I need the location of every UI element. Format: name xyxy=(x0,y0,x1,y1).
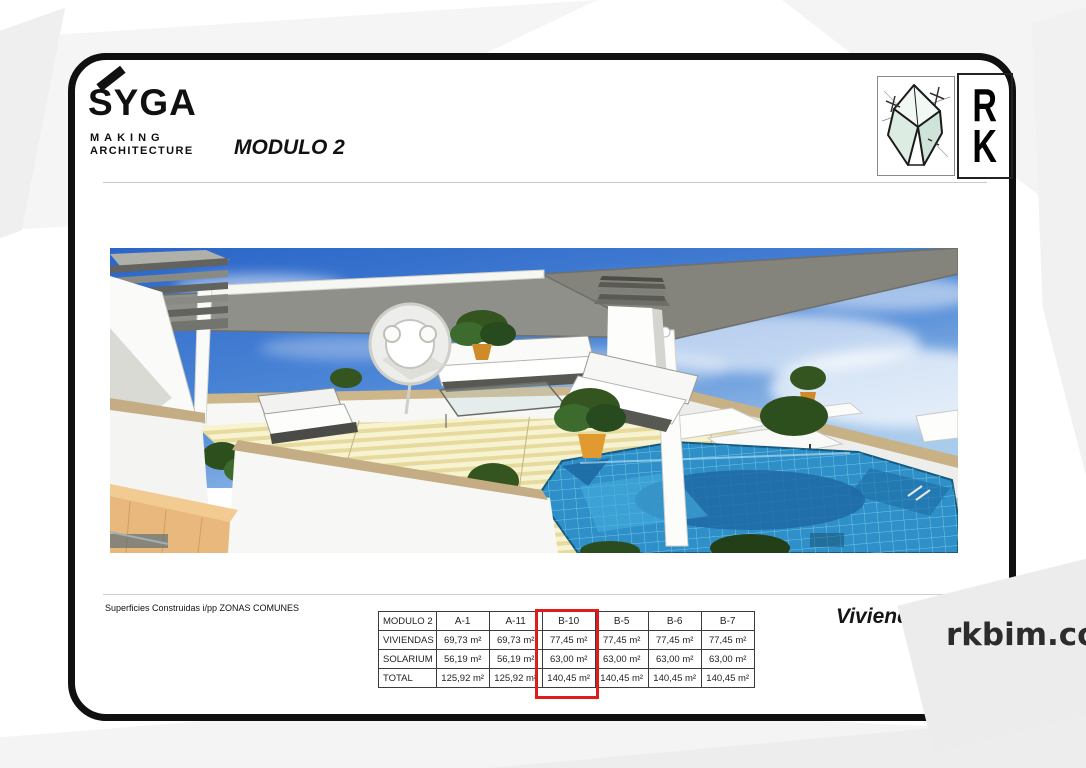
table-row: VIVIENDAS 69,73 m² 69,73 m² 77,45 m² 77,… xyxy=(379,631,755,650)
table-header-row: MODULO 2 A-1 A-11 B-10 B-5 B-6 B-7 xyxy=(379,612,755,631)
slide-page: SYGA MAKING ARCHITECTURE MODULO 2 R K xyxy=(0,0,1086,768)
terrace-render xyxy=(110,248,958,553)
syga-logo-text: SYGA xyxy=(88,82,197,124)
column-header: B-7 xyxy=(701,612,754,631)
rk-letter-k: K xyxy=(973,126,998,167)
cell: 56,19 m² xyxy=(436,650,489,669)
table-row: TOTAL 125,92 m² 125,92 m² 140,45 m² 140,… xyxy=(379,669,755,688)
cell: 63,00 m² xyxy=(701,650,754,669)
column-header: B-5 xyxy=(595,612,648,631)
cell: 140,45 m² xyxy=(648,669,701,688)
footer-note: Superficies Construidas i/pp ZONAS COMUN… xyxy=(105,603,299,613)
cell: 77,45 m² xyxy=(648,631,701,650)
row-label: SOLARIUM xyxy=(379,650,437,669)
cell: 77,45 m² xyxy=(595,631,648,650)
cell: 77,45 m² xyxy=(542,631,595,650)
table-corner-cell: MODULO 2 xyxy=(379,612,437,631)
cell: 69,73 m² xyxy=(489,631,542,650)
syga-logo: SYGA MAKING ARCHITECTURE xyxy=(88,70,248,166)
cell: 63,00 m² xyxy=(648,650,701,669)
column-header: B-6 xyxy=(648,612,701,631)
watermark-text: rkbim.com xyxy=(946,617,1086,653)
page-title: MODULO 2 xyxy=(234,136,345,160)
cell: 56,19 m² xyxy=(489,650,542,669)
areas-table: MODULO 2 A-1 A-11 B-10 B-5 B-6 B-7 VIVIE… xyxy=(378,611,755,688)
syga-tagline-line2: ARCHITECTURE xyxy=(90,145,194,157)
cell: 140,45 m² xyxy=(542,669,595,688)
rk-logo: R K xyxy=(957,73,1013,179)
table-row: SOLARIUM 56,19 m² 56,19 m² 63,00 m² 63,0… xyxy=(379,650,755,669)
header-divider xyxy=(103,182,987,183)
cell: 69,73 m² xyxy=(436,631,489,650)
cell: 140,45 m² xyxy=(595,669,648,688)
column-header: A-11 xyxy=(489,612,542,631)
column-header: A-1 xyxy=(436,612,489,631)
row-label: TOTAL xyxy=(379,669,437,688)
cell: 63,00 m² xyxy=(595,650,648,669)
cell: 125,92 m² xyxy=(489,669,542,688)
rk-crystal-icon xyxy=(877,76,955,176)
crystal-glyph xyxy=(878,77,954,175)
cell: 140,45 m² xyxy=(701,669,754,688)
cell: 125,92 m² xyxy=(436,669,489,688)
syga-tagline-line1: MAKING xyxy=(90,132,165,144)
cell: 63,00 m² xyxy=(542,650,595,669)
column-header-highlighted: B-10 xyxy=(542,612,595,631)
terrace-render-svg xyxy=(110,248,958,553)
cell: 77,45 m² xyxy=(701,631,754,650)
footer-divider xyxy=(103,594,987,595)
row-label: VIVIENDAS xyxy=(379,631,437,650)
